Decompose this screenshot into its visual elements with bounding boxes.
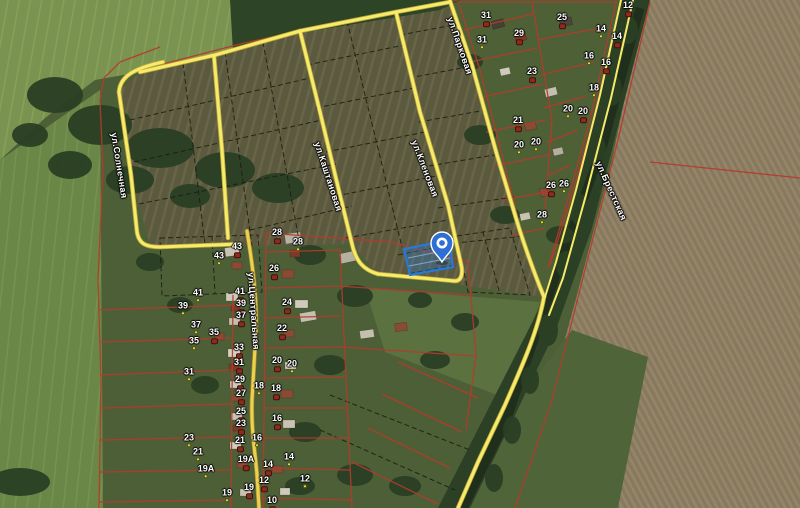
terrain (0, 0, 800, 508)
satellite-map (0, 0, 800, 508)
map-viewport[interactable]: ул.Солнечнаяул.Каштановаяул.Кленоваяул.П… (0, 0, 800, 508)
